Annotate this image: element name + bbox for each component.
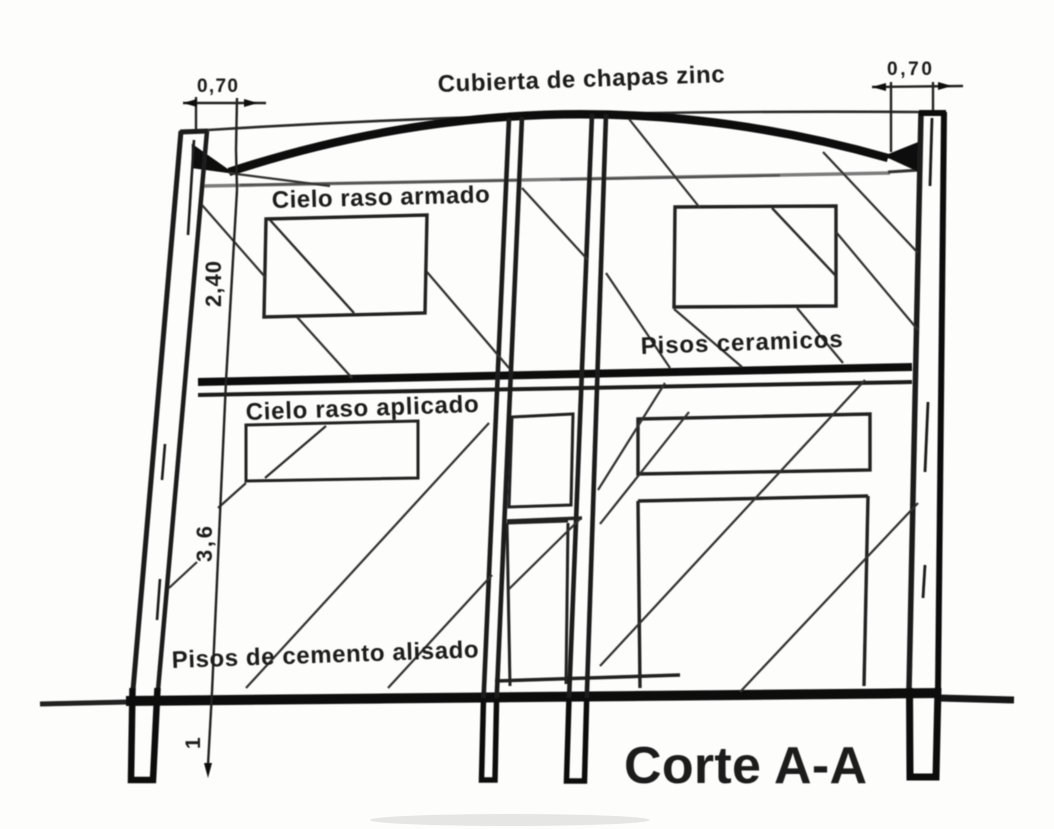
- svg-text:Cielo raso armado: Cielo raso armado: [271, 181, 490, 214]
- svg-text:Corte A-A: Corte A-A: [624, 737, 867, 795]
- svg-text:1: 1: [182, 737, 205, 749]
- svg-text:3,6: 3,6: [192, 526, 217, 562]
- svg-text:0,70: 0,70: [887, 59, 932, 80]
- svg-text:0,70: 0,70: [197, 76, 238, 97]
- svg-text:2,40: 2,40: [201, 261, 226, 307]
